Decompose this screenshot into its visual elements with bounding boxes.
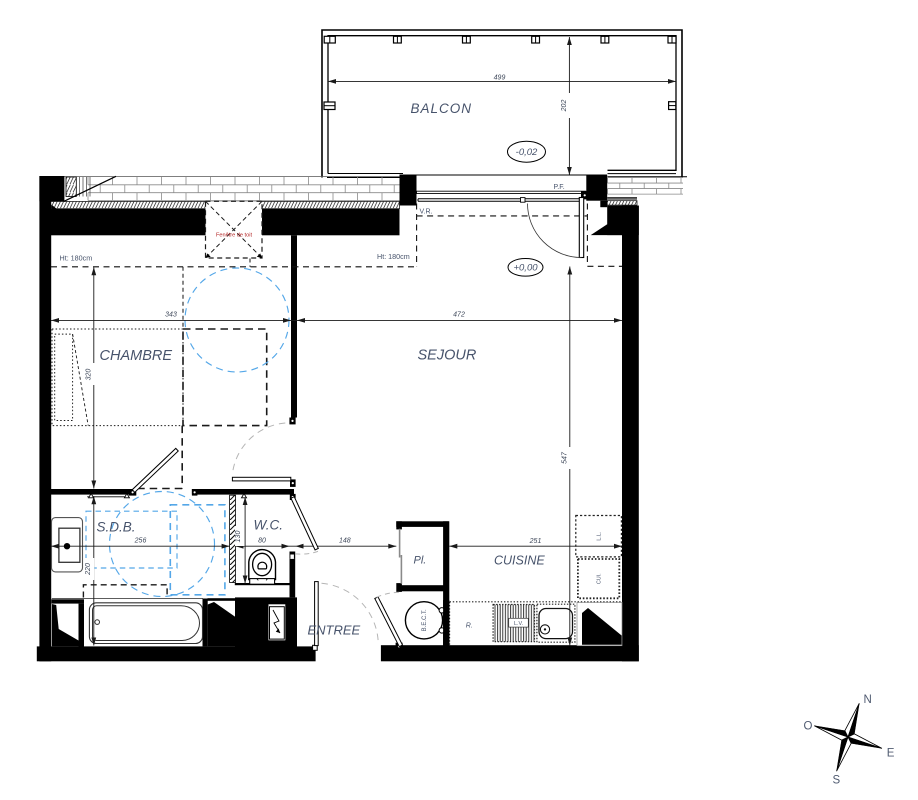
svg-text:CUISINE: CUISINE: [494, 554, 545, 568]
svg-text:80: 80: [258, 538, 266, 545]
svg-text:472: 472: [453, 312, 465, 319]
svg-text:O: O: [804, 721, 813, 733]
svg-text:547: 547: [562, 451, 569, 464]
svg-text:Fenêtre de toit: Fenêtre de toit: [216, 232, 253, 238]
svg-text:L.V.: L.V.: [514, 621, 523, 627]
svg-text:Pl.: Pl.: [414, 555, 427, 567]
svg-text:SEJOUR: SEJOUR: [418, 348, 477, 364]
svg-text:Ht: 180cm: Ht: 180cm: [60, 253, 93, 262]
svg-text:130: 130: [235, 531, 242, 543]
svg-text:202: 202: [561, 100, 568, 113]
svg-text:251: 251: [529, 538, 542, 545]
svg-text:N: N: [864, 694, 872, 706]
svg-text:S.D.B.: S.D.B.: [97, 520, 136, 535]
svg-text:R.: R.: [466, 623, 473, 630]
svg-text:343: 343: [165, 312, 177, 319]
svg-text:256: 256: [134, 538, 147, 545]
svg-text:B.E.C.T.: B.E.C.T.: [422, 609, 428, 631]
svg-text:320: 320: [86, 369, 93, 381]
svg-text:ENTREE: ENTREE: [308, 623, 361, 638]
svg-text:L.L.: L.L.: [596, 532, 602, 541]
svg-text:CUI.: CUI.: [596, 573, 602, 584]
svg-text:-0,02: -0,02: [516, 147, 538, 158]
svg-text:CHAMBRE: CHAMBRE: [100, 348, 173, 364]
svg-text:+0,00: +0,00: [513, 263, 538, 274]
svg-text:BALCON: BALCON: [411, 101, 473, 116]
svg-text:148: 148: [339, 538, 351, 545]
svg-text:Ht: 180cm: Ht: 180cm: [377, 252, 410, 261]
svg-text:P.F.: P.F.: [554, 184, 565, 191]
svg-text:S: S: [833, 775, 841, 787]
svg-text:V.R.: V.R.: [420, 209, 433, 216]
svg-text:W.C.: W.C.: [254, 518, 284, 533]
svg-text:E: E: [887, 748, 895, 760]
svg-text:499: 499: [494, 75, 506, 82]
svg-text:220: 220: [85, 563, 92, 576]
